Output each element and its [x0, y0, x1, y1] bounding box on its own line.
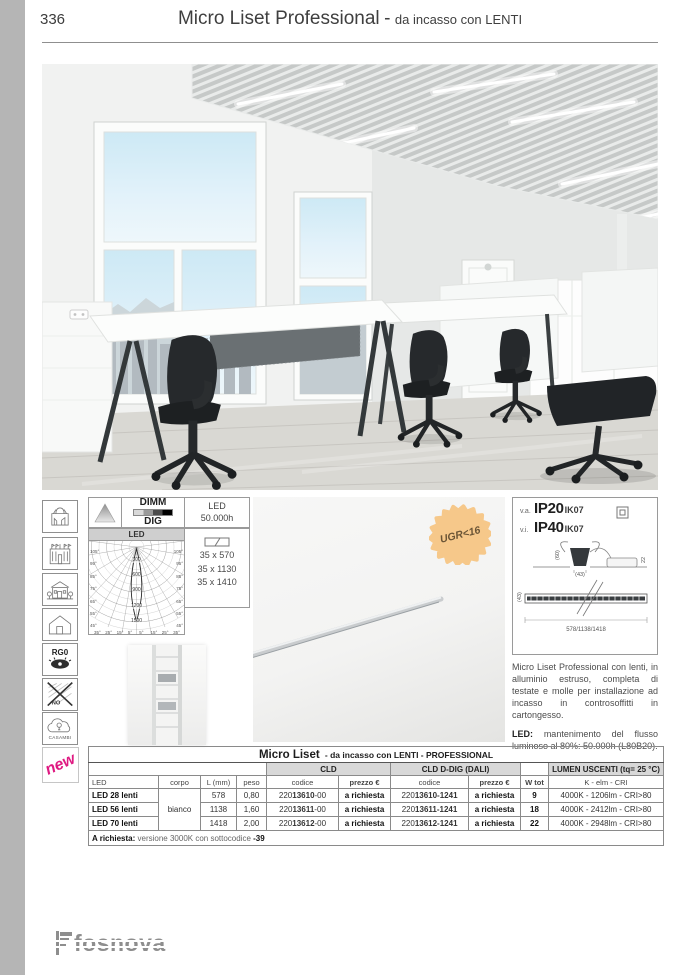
recessed-profile-icon	[203, 535, 231, 549]
polar-label: 105°	[174, 550, 183, 555]
recessed-square-icon	[616, 506, 629, 519]
cld-price: a richiesta	[339, 789, 391, 803]
polar-label: 600	[132, 573, 140, 578]
ordering-table: Micro Liset - da incasso con LENTI - PRO…	[88, 746, 664, 846]
dimension-drawing: (60) (43) 22 (43)	[513, 536, 659, 640]
logo-stripe	[54, 940, 166, 942]
product-title: Micro Liset Professional	[178, 8, 380, 29]
dim-width-label: (43)	[575, 572, 585, 578]
house-icon	[45, 611, 75, 638]
polar-label: 95°	[90, 562, 97, 567]
polar-label: 45°	[176, 624, 183, 629]
header-rule	[42, 42, 658, 43]
wtot-value: 18	[521, 803, 549, 817]
new-badge: new	[42, 747, 79, 783]
col-prezzo-dali: prezzo €	[469, 776, 521, 789]
page-title: Micro Liset Professional - da incasso co…	[42, 8, 658, 30]
size-option: 35 x 1410	[197, 576, 237, 590]
weight-value: 1,60	[237, 803, 267, 817]
length-value: 578	[201, 789, 237, 803]
col-lumen: K - elm - CRI	[549, 776, 664, 789]
wtot-value: 9	[521, 789, 549, 803]
title-separator: -	[384, 8, 390, 29]
dali-price: a richiesta	[469, 817, 521, 831]
casambi-icon: CASAMBI	[42, 712, 78, 745]
dali-code: 22013611-1241	[391, 803, 469, 817]
cld-price: a richiesta	[339, 817, 391, 831]
polar-label: 5°	[139, 631, 143, 636]
ratings-box: v.a. IP20 IK07 v.i. IP40 IK07 (60) (43) …	[512, 497, 658, 655]
polar-label: 25°	[162, 631, 169, 636]
col-wtot: W tot	[521, 776, 549, 789]
hero-photo-office	[42, 64, 658, 490]
lumen-value: 4000K - 1206lm - CRI>80	[549, 789, 664, 803]
casambi-label: CASAMBI	[49, 736, 72, 741]
villa-trees-icon	[45, 576, 75, 603]
col-corpo: corpo	[159, 776, 201, 789]
wall-outlet	[70, 310, 88, 319]
polar-label: 900	[132, 588, 140, 593]
polar-label: 15°	[117, 631, 124, 636]
dig-label: DIG	[144, 517, 162, 527]
size-option: 35 x 1130	[198, 563, 237, 577]
group-lumen: LUMEN USCENTI (tq= 25 °C)	[549, 763, 664, 776]
wall-panel	[617, 214, 627, 274]
product-photo: UGR<16	[253, 497, 505, 742]
ik07-value: IK07	[565, 505, 584, 515]
optic-triangle-cell	[88, 497, 122, 528]
fosnova-mark-icon	[56, 931, 72, 955]
application-school-icon	[42, 573, 78, 606]
led-label: LED:	[512, 729, 533, 739]
ip-row-2: v.i. IP40 IK07	[513, 519, 657, 536]
vertical-luminaire	[128, 645, 206, 745]
group-cld: CLD	[267, 763, 391, 776]
catalog-page: 336 Micro Liset Professional - da incass…	[0, 0, 700, 975]
ip40-value: IP40	[534, 519, 564, 536]
lumen-value: 4000K - 2948lm - CRI>80	[549, 817, 664, 831]
photometric-diagram: LED	[88, 528, 185, 635]
polar-label: 25°	[105, 631, 112, 636]
polar-label: 15°	[151, 631, 158, 636]
polar-label: 35°	[173, 631, 180, 636]
table-group-row: CLD CLD D-DIG (DALI) LUMEN USCENTI (tq= …	[89, 763, 664, 776]
led-name: LED 28 lenti	[89, 789, 159, 803]
note-code: -39	[253, 834, 265, 843]
ik07-value-2: IK07	[565, 524, 584, 534]
cld-price: a richiesta	[339, 803, 391, 817]
dimm-label: DIMM	[140, 498, 167, 508]
cloud-bulb-icon	[45, 716, 75, 736]
note-label: A richiesta:	[92, 834, 135, 843]
application-residential-icon	[42, 608, 78, 641]
dali-price: a richiesta	[469, 803, 521, 817]
polar-label: 85°	[90, 575, 97, 580]
page-margin-band	[0, 0, 25, 975]
bar-height-label: (43)	[517, 592, 523, 602]
col-prezzo-cld: prezzo €	[339, 776, 391, 789]
polar-label: 55°	[90, 612, 97, 617]
cld-code: 22013612-00	[267, 817, 339, 831]
office-scene	[42, 64, 658, 490]
table-header-row: LED corpo L (mm) peso codice prezzo € co…	[89, 776, 664, 789]
description-paragraph: Micro Liset Professional con lenti, in a…	[512, 662, 658, 722]
divider-panel-far	[582, 268, 658, 372]
dali-code: 22013610-1241	[391, 789, 469, 803]
col-codice-dali: codice	[391, 776, 469, 789]
wtot-value: 22	[521, 817, 549, 831]
polar-label: 65°	[90, 600, 97, 605]
polar-label: 35°	[94, 631, 101, 636]
cld-code: 22013610-00	[267, 789, 339, 803]
dali-price: a richiesta	[469, 789, 521, 803]
polar-label: 75°	[90, 587, 97, 592]
shopping-bag-icon	[45, 503, 75, 530]
lumen-value: 4000K - 2412lm - CRI>80	[549, 803, 664, 817]
length-value: 1138	[201, 803, 237, 817]
vi-label: v.i.	[520, 527, 534, 534]
luminaire-front-photo	[128, 645, 206, 745]
table-title: Micro Liset	[259, 749, 320, 761]
length-value: 1418	[201, 817, 237, 831]
logo-stripe	[54, 946, 166, 948]
cld-code: 22013611-00	[267, 803, 339, 817]
lengths-label: 578/1138/1418	[566, 627, 606, 633]
rg0-label: RG0	[52, 649, 68, 657]
product-subtitle: da incasso con LENTI	[395, 12, 522, 27]
new-label: new	[43, 750, 79, 779]
note-text: versione 3000K con sottocodice	[135, 834, 253, 843]
col-led: LED	[89, 776, 159, 789]
brand-name: fosnova	[74, 932, 166, 955]
corpo-value: bianco	[159, 789, 201, 831]
eye-icon	[48, 657, 72, 671]
window-small	[294, 192, 372, 400]
polar-label: 85°	[176, 575, 183, 580]
polar-label: 105°	[90, 550, 99, 555]
table-title-suffix: - da incasso con LENTI - PROFESSIONAL	[325, 750, 493, 760]
ugr-badge: UGR<16	[429, 503, 491, 565]
application-retail-icon	[42, 500, 78, 533]
col-peso: peso	[237, 776, 267, 789]
col-codice-cld: codice	[267, 776, 339, 789]
polar-label: 65°	[176, 600, 183, 605]
polar-title: LED	[89, 529, 184, 541]
weight-value: 0,80	[237, 789, 267, 803]
polar-label: 5°	[128, 631, 132, 636]
led-name: LED 70 lenti	[89, 817, 159, 831]
polar-label: 45°	[90, 624, 97, 629]
led-name: LED 56 lenti	[89, 803, 159, 817]
polar-label: 300	[132, 558, 140, 563]
beam-triangle-icon	[93, 502, 117, 524]
crossed-out-icon: NO	[45, 681, 75, 708]
dim-height-label: (60)	[555, 550, 561, 560]
ip20-value: IP20	[534, 500, 564, 517]
va-label: v.a.	[520, 508, 534, 515]
polar-label: 1500	[131, 619, 142, 624]
no-lamp-icon: NO	[42, 678, 78, 711]
polar-label: 55°	[176, 612, 183, 617]
table-title-row: Micro Liset - da incasso con LENTI - PRO…	[89, 747, 664, 763]
building-flags-icon	[45, 540, 75, 567]
polar-grid: 30060090012001500105°95°85°75°65°55°45°1…	[89, 541, 184, 635]
dimming-gradient-bar	[133, 509, 173, 516]
brand-text: fosnova	[74, 930, 166, 956]
dimming-cell: DIMM DIG	[121, 497, 185, 528]
group-dali: CLD D-DIG (DALI)	[391, 763, 521, 776]
polar-label: 1200	[131, 604, 142, 609]
application-public-building-icon	[42, 537, 78, 570]
polar-label: 95°	[176, 562, 183, 567]
polar-labels: 30060090012001500105°95°85°75°65°55°45°1…	[89, 541, 184, 635]
weight-value: 2,00	[237, 817, 267, 831]
dimensions-box: 35 x 570 35 x 1130 35 x 1410	[184, 528, 250, 608]
ip-row-1: v.a. IP20 IK07	[513, 500, 657, 517]
dali-code: 22013612-1241	[391, 817, 469, 831]
dim-driver-label: 22	[641, 557, 647, 563]
size-option: 35 x 570	[200, 549, 235, 563]
table-row: LED 28 lenti bianco 578 0,80 22013610-00…	[89, 789, 664, 803]
brand-logo: fosnova	[56, 928, 166, 958]
led-lifetime-cell: LED 50.000h	[184, 497, 250, 528]
led-life-line1: LED	[208, 501, 226, 512]
table-note-row: A richiesta: versione 3000K con sottocod…	[89, 831, 664, 846]
led-life-line2: 50.000h	[201, 513, 234, 524]
no-label: NO	[52, 701, 61, 707]
col-l: L (mm)	[201, 776, 237, 789]
polar-label: 75°	[176, 587, 183, 592]
rg0-photobiological-icon: RG0	[42, 643, 78, 676]
